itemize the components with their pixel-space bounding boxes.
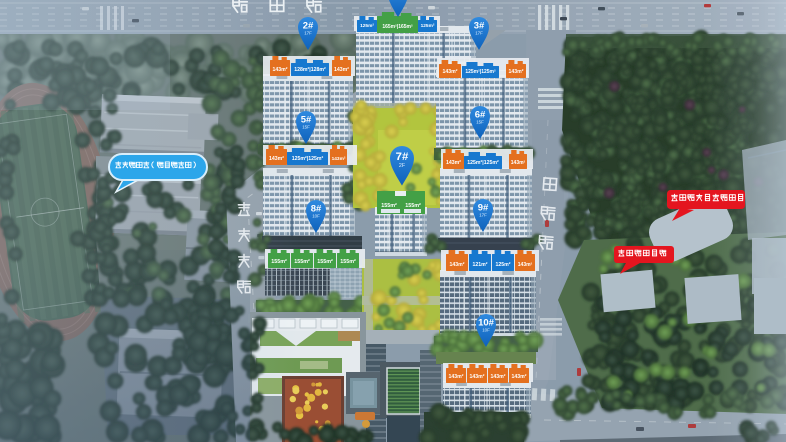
svg-text:125m²|125m²: 125m²|125m² (465, 69, 496, 75)
svg-text:125m²|125m²: 125m²|125m² (467, 160, 499, 166)
svg-text:17F: 17F (475, 31, 483, 36)
svg-text:143m²: 143m² (450, 262, 465, 268)
svg-text:143m²: 143m² (446, 160, 461, 166)
svg-text:125m²: 125m² (421, 23, 435, 29)
svg-text:143m²: 143m² (470, 374, 485, 380)
svg-text:17F: 17F (479, 213, 487, 218)
svg-text:143m²: 143m² (443, 69, 458, 75)
svg-text:125m²|125m²: 125m²|125m² (292, 156, 324, 162)
svg-text:143m²: 143m² (449, 374, 464, 380)
svg-text:128m²|128m²: 128m²|128m² (294, 67, 326, 73)
svg-text:2F: 2F (399, 163, 406, 169)
svg-text:125m²: 125m² (496, 262, 511, 268)
svg-text:155m²: 155m² (294, 259, 310, 265)
svg-text:155m²: 155m² (340, 259, 356, 265)
svg-text:15F: 15F (476, 120, 484, 125)
svg-text:165m²|165m²: 165m²|165m² (382, 24, 413, 30)
svg-text:15F: 15F (302, 125, 310, 130)
svg-text:143m²: 143m² (273, 67, 288, 73)
svg-text:143m²: 143m² (512, 374, 527, 380)
svg-text:143m²: 143m² (509, 69, 524, 75)
svg-text:10F: 10F (312, 214, 320, 219)
svg-text:7#: 7# (396, 151, 409, 163)
svg-text:155m²: 155m² (317, 259, 333, 265)
svg-text:143m²: 143m² (491, 374, 506, 380)
svg-text:155m²: 155m² (381, 203, 397, 209)
svg-text:17F: 17F (304, 31, 312, 36)
svg-text:155m²: 155m² (405, 203, 421, 209)
svg-text:125m²: 125m² (360, 23, 374, 29)
svg-text:10F: 10F (482, 328, 490, 333)
svg-text:143m²: 143m² (332, 156, 346, 162)
svg-text:121m²: 121m² (473, 262, 488, 268)
svg-text:143m²: 143m² (269, 156, 284, 162)
svg-text:143m²: 143m² (334, 67, 349, 73)
svg-text:155m²: 155m² (271, 259, 287, 265)
svg-text:143m²: 143m² (511, 160, 526, 166)
svg-text:143m²: 143m² (518, 262, 533, 268)
